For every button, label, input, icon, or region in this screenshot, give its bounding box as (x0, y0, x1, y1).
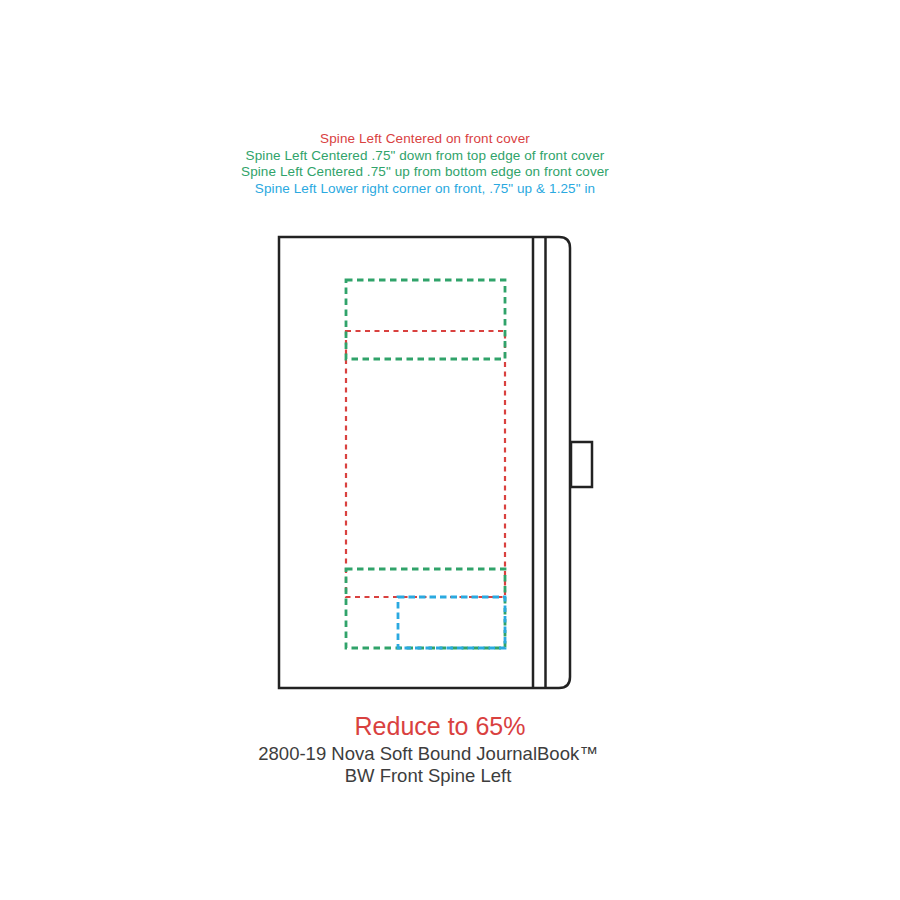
reduce-note: Reduce to 65% (0, 711, 880, 741)
pen-loop (571, 442, 592, 487)
product-info: 2800-19 Nova Soft Bound JournalBook™ BW … (0, 743, 856, 786)
notebook-outline (279, 237, 570, 688)
imprint-proof-sheet: Spine Left Centered on front cover Spine… (0, 0, 900, 900)
product-variant: BW Front Spine Left (0, 765, 856, 787)
product-name: 2800-19 Nova Soft Bound JournalBook™ (0, 743, 856, 765)
